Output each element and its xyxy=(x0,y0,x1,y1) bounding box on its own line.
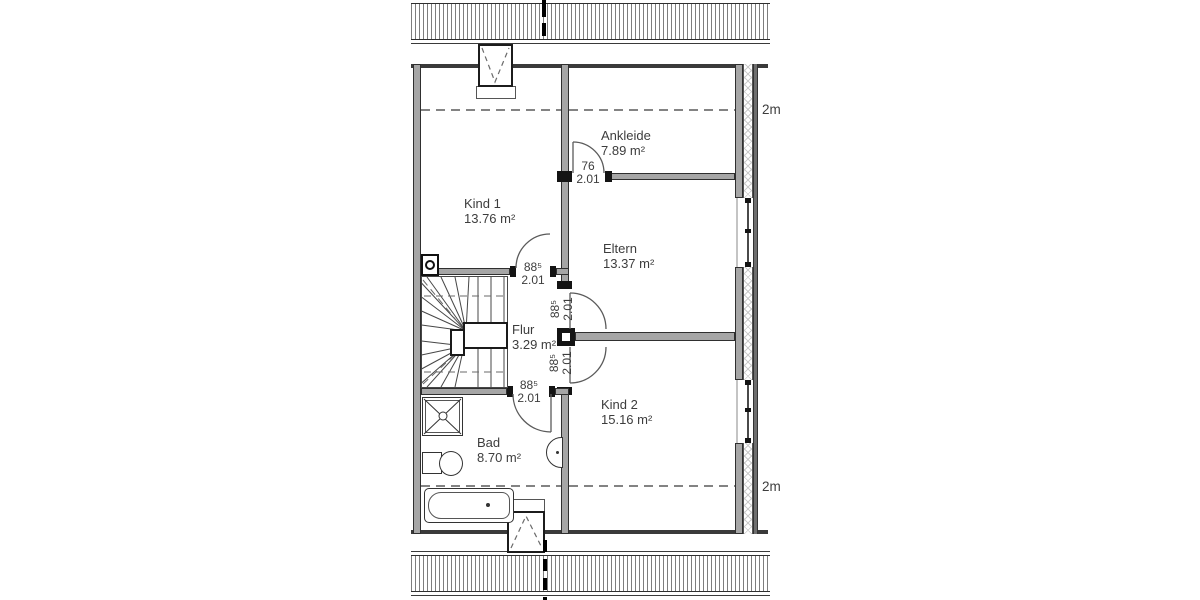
window-eltern-tick-mid xyxy=(745,229,751,233)
window-kind2-tick-top xyxy=(745,380,751,385)
knee-wall-line-top xyxy=(411,64,768,68)
room-area: 13.37 m² xyxy=(603,256,654,271)
room-label-kind2: Kind 2 15.16 m² xyxy=(601,397,652,427)
door-label-eltern: 88⁵ 2.01 xyxy=(549,286,577,332)
door-height: 2.01 xyxy=(561,340,574,386)
washbasin-drain xyxy=(556,451,559,454)
room-label-kind1: Kind 1 13.76 m² xyxy=(464,196,515,226)
eaves-band-top-line xyxy=(411,43,770,44)
eaves-band-bottom xyxy=(411,555,770,592)
window-eltern-jamb xyxy=(736,198,738,267)
door-height: 2.01 xyxy=(570,173,606,186)
door-label-kind1: 88⁵ 2.01 xyxy=(512,261,554,287)
roof-window-top xyxy=(478,44,513,87)
bathtub-inner xyxy=(428,492,510,519)
room-area: 8.70 m² xyxy=(477,450,521,465)
room-label-bad: Bad 8.70 m² xyxy=(477,435,521,465)
staircase xyxy=(422,277,508,388)
plan-linework xyxy=(0,0,1200,600)
washbasin xyxy=(546,437,563,468)
door-label-kind2: 88⁵ 2.01 xyxy=(548,340,576,386)
eaves-band-top xyxy=(411,3,770,40)
eaves-band-bottom-line2 xyxy=(411,595,770,596)
roof-window-dashes xyxy=(482,48,542,548)
room-name: Kind 1 xyxy=(464,196,515,211)
right-wall-insulation-3 xyxy=(743,443,753,534)
knee-wall-line-bottom xyxy=(411,530,768,534)
door-label-ankleide: 76 2.01 xyxy=(570,160,606,186)
right-wall-insulation-2 xyxy=(743,267,753,380)
window-eltern-tick-top xyxy=(745,198,751,203)
shower-inner xyxy=(425,400,460,433)
door-label-bad: 88⁵ 2.01 xyxy=(508,379,550,405)
left-outer-wall xyxy=(413,64,421,534)
door-height: 2.01 xyxy=(508,392,550,405)
room-area: 15.16 m² xyxy=(601,412,652,427)
floor-plan: Kind 1 13.76 m² Ankleide 7.89 m² Eltern … xyxy=(0,0,1200,600)
wall-cap xyxy=(605,171,612,182)
room-name: Eltern xyxy=(603,241,654,256)
bathtub-drain xyxy=(486,503,490,507)
room-name: Kind 2 xyxy=(601,397,652,412)
wall-kind1-flur-jamb xyxy=(556,268,569,275)
right-wall-seg2 xyxy=(735,267,743,380)
room-area: 13.76 m² xyxy=(464,211,515,226)
room-area: 7.89 m² xyxy=(601,143,651,158)
wall-flur-bad xyxy=(421,388,507,395)
toilet-bowl xyxy=(439,451,463,476)
wall-ankleide-eltern xyxy=(605,173,735,180)
room-label-eltern: Eltern 13.37 m² xyxy=(603,241,654,271)
right-wall-seg3 xyxy=(735,443,743,534)
room-name: Ankleide xyxy=(601,128,651,143)
room-name: Bad xyxy=(477,435,521,450)
eaves-band-bottom-line1 xyxy=(411,551,770,552)
height-marker-top: 2m xyxy=(762,102,781,117)
door-height: 2.01 xyxy=(512,274,554,287)
window-kind2-tick-mid xyxy=(745,408,751,412)
roof-window-top-sill xyxy=(476,86,516,99)
right-wall-outer-bar xyxy=(753,64,758,534)
wall-flur-bad-jamb xyxy=(555,388,569,395)
height-marker-bottom: 2m xyxy=(762,479,781,494)
room-label-ankleide: Ankleide 7.89 m² xyxy=(601,128,651,158)
right-wall-seg1 xyxy=(735,64,743,198)
right-wall-insulation-1 xyxy=(743,64,753,198)
chimney-flue xyxy=(425,260,435,270)
wall-eltern-kind2 xyxy=(575,332,735,341)
door-height: 2.01 xyxy=(562,286,575,332)
window-kind2-jamb xyxy=(736,380,738,443)
